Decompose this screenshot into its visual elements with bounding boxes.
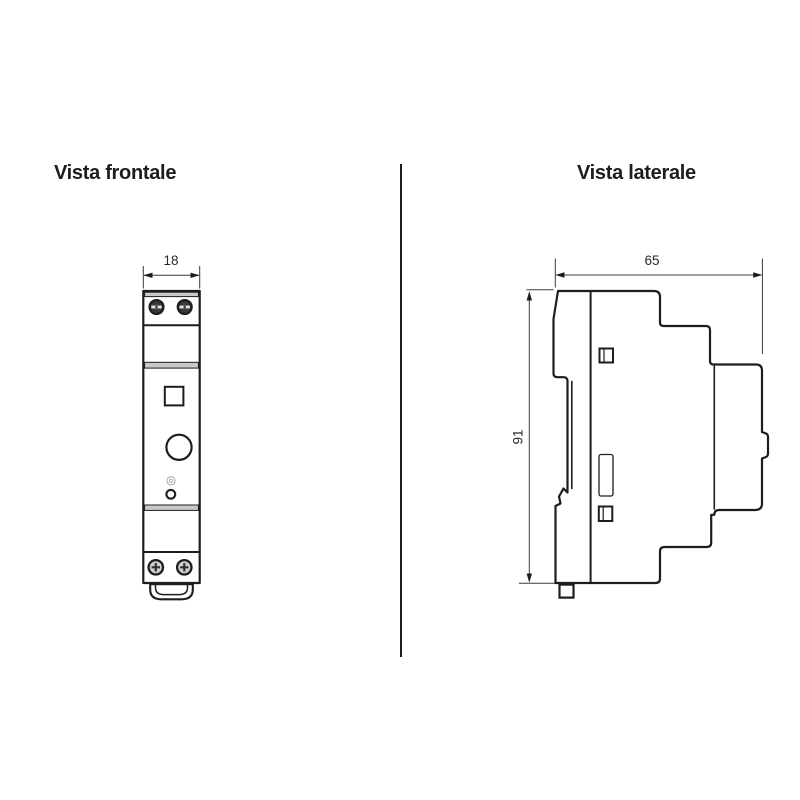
front-round-button xyxy=(166,435,191,460)
side-view-drawing xyxy=(519,259,768,598)
side-din-clip-tab xyxy=(560,585,574,598)
side-slot-window xyxy=(599,455,613,497)
front-width-dimension xyxy=(143,266,199,289)
front-square-window xyxy=(165,387,184,406)
front-mid-band xyxy=(145,362,199,368)
front-din-clip-tab xyxy=(150,584,193,599)
side-height-dimension xyxy=(519,290,556,584)
side-top-latch-icon xyxy=(600,349,614,363)
bottom-left-screw-icon xyxy=(149,560,163,574)
side-bottom-latch-icon xyxy=(599,507,613,522)
front-view-drawing xyxy=(143,266,199,599)
front-lower-band xyxy=(145,505,199,510)
bottom-right-screw-icon xyxy=(177,560,191,574)
front-top-band xyxy=(145,292,199,296)
technical-drawing-page: Vista frontale Vista laterale 18 65 91 xyxy=(0,0,800,800)
drawing-canvas xyxy=(0,0,800,800)
top-left-screw-icon xyxy=(150,300,164,314)
side-profile-outline xyxy=(554,291,769,583)
top-right-screw-icon xyxy=(178,300,192,314)
front-led-indicator-icon xyxy=(166,490,175,499)
